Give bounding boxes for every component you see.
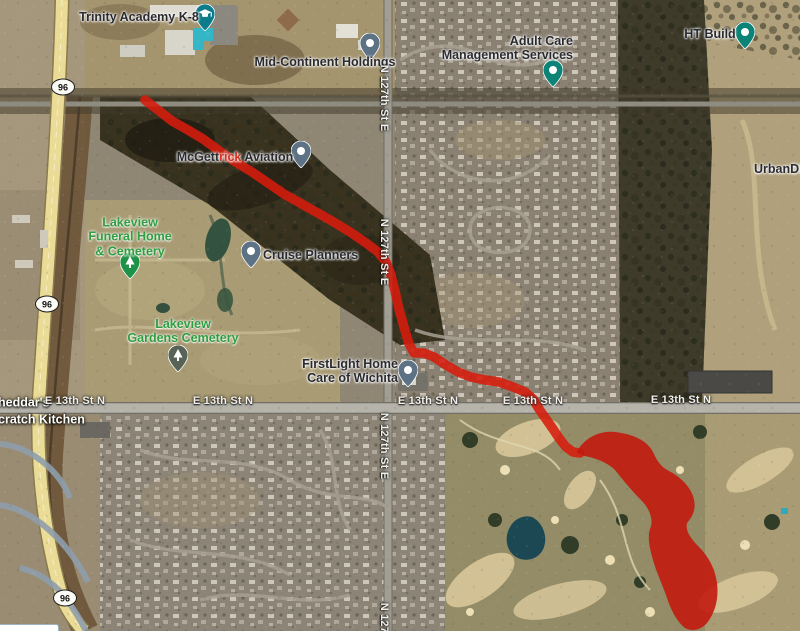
label-part: rick bbox=[219, 150, 241, 164]
satellite-map-canvas[interactable]: Trinity Academy K-8Mid-Continent Holding… bbox=[0, 0, 800, 631]
mcgettrick-pin[interactable] bbox=[291, 141, 311, 168]
dot-pin-icon bbox=[735, 22, 755, 49]
highway-96-shield-icon: 96 bbox=[35, 296, 59, 313]
firstlight-pin[interactable] bbox=[398, 360, 418, 387]
label-part: McGett bbox=[177, 150, 219, 164]
dot-pin-icon bbox=[543, 60, 563, 87]
lakeview-gardens-pin[interactable] bbox=[168, 345, 188, 372]
mid-continent-label[interactable]: Mid-Continent Holdings bbox=[255, 55, 396, 69]
cruise-planners-pin[interactable] bbox=[241, 241, 261, 268]
lakeview-gardens-label[interactable]: LakeviewGardens Cemetery bbox=[127, 317, 238, 346]
street-label-e-13th-st-n: E 13th St N bbox=[398, 395, 458, 407]
label-line: Lakeview bbox=[127, 317, 238, 331]
ht-build-label[interactable]: HT Build bbox=[684, 27, 735, 41]
mcgettrick-label[interactable]: McGettrick Aviation bbox=[177, 150, 293, 164]
street-label-n-127th-st-e: N 127th St E bbox=[378, 65, 390, 132]
label-line: & Cemetery bbox=[88, 244, 171, 258]
label-line: UrbanDN bbox=[754, 162, 800, 176]
street-label-e-13th-st-n: E 13th St N bbox=[651, 394, 711, 406]
label-line: Lakeview bbox=[88, 216, 171, 230]
label-part: Aviation bbox=[241, 150, 293, 164]
cruise-planners-label[interactable]: Cruise Planners bbox=[263, 248, 358, 262]
urbandn-label[interactable]: UrbanDN bbox=[754, 162, 800, 176]
label-line: Management Services bbox=[442, 48, 573, 62]
street-label-n-127th-st-e: N 127th St E bbox=[378, 219, 390, 286]
street-label-n-127th-st-e: N 127th St E bbox=[378, 413, 390, 480]
lakeview-funeral-label[interactable]: LakeviewFuneral Home& Cemetery bbox=[88, 216, 171, 259]
dot-pin-icon bbox=[398, 360, 418, 387]
dot-pin-icon bbox=[241, 241, 261, 268]
label-line: FirstLight Home bbox=[302, 357, 398, 371]
label-line: Care of Wichita bbox=[302, 371, 398, 385]
highway-96-shield-icon: 96 bbox=[51, 79, 75, 96]
label-line: Funeral Home bbox=[88, 230, 171, 244]
adult-care-pin[interactable] bbox=[543, 60, 563, 87]
street-label-e-13th-st-n: E 13th St N bbox=[45, 395, 105, 407]
label-line: cratch Kitchen bbox=[0, 411, 85, 428]
highway-96-shield-icon: 96 bbox=[53, 590, 77, 607]
street-label-e-13th-st-n: E 13th St N bbox=[503, 395, 563, 407]
label-line: Trinity Academy K-8 bbox=[79, 10, 199, 24]
label-line: Gardens Cemetery bbox=[127, 331, 238, 345]
label-line: Mid-Continent Holdings bbox=[255, 55, 396, 69]
ht-build-pin[interactable] bbox=[735, 22, 755, 49]
label-line: HT Build bbox=[684, 27, 735, 41]
label-line: Cruise Planners bbox=[263, 248, 358, 262]
firstlight-label[interactable]: FirstLight HomeCare of Wichita bbox=[302, 357, 398, 386]
label-line: Adult Care bbox=[442, 34, 573, 48]
tree-pin-icon bbox=[168, 345, 188, 372]
adult-care-label[interactable]: Adult CareManagement Services bbox=[442, 34, 573, 63]
map-labels-layer: Trinity Academy K-8Mid-Continent Holding… bbox=[0, 0, 800, 631]
trinity-academy-label[interactable]: Trinity Academy K-8 bbox=[79, 10, 199, 24]
dot-pin-icon bbox=[291, 141, 311, 168]
map-ui-fragment bbox=[0, 624, 59, 631]
street-label-n-127th-st-e: N 127th St E bbox=[378, 603, 390, 631]
street-label-e-13th-st-n: E 13th St N bbox=[193, 395, 253, 407]
